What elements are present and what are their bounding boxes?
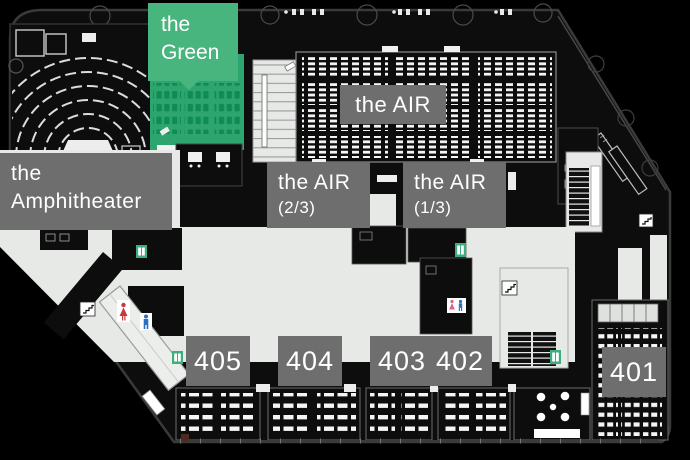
label-the-green-line1: the [161,11,238,39]
label-the-green-line2: Green [161,39,238,67]
label-room-402: 402 [428,336,492,386]
label-the-amphitheater: the Amphitheater [0,153,172,230]
label-the-air-text: the AIR [355,92,431,118]
restroom-woman-icon [117,300,130,322]
restroom-man-icon [140,313,152,330]
green-room-seats [153,83,242,134]
meeting-tables [176,144,242,186]
label-the-amphitheater-line2: Amphitheater [11,188,172,216]
lounge-sign [534,429,580,438]
amphitheater-booth [16,30,66,56]
floor-map: the Green the AIR the AIR (2/3) the AIR … [0,0,690,460]
label-the-air-2-3: the AIR (2/3) [267,162,370,228]
room-405 [176,388,260,440]
floor-plan-graphic [0,0,690,460]
label-room-401: 401 [602,347,666,397]
label-the-green: the Green [148,3,238,81]
lounge-tables [514,388,590,440]
room-402 [438,388,510,440]
room-404 [268,388,360,440]
label-the-air-2-3-line1: the AIR [278,169,370,197]
label-the-air-2-3-line2: (2/3) [278,197,370,219]
stairs-east [566,152,602,232]
room-401-lockers [598,304,658,322]
label-room-404: 404 [278,336,342,386]
service-core-east [420,258,472,334]
restroom-icon [447,298,466,313]
label-room-403: 403 [370,336,434,386]
label-the-air-1-3: the AIR (1/3) [403,162,506,228]
label-the-air-1-3-line1: the AIR [414,169,506,197]
label-room-405: 405 [186,336,250,386]
green-label-pointer [180,81,198,90]
label-the-air-1-3-line2: (1/3) [414,197,506,219]
label-the-amphitheater-line1: the [11,160,172,188]
label-the-air: the AIR [340,85,446,124]
room-403 [366,388,432,440]
